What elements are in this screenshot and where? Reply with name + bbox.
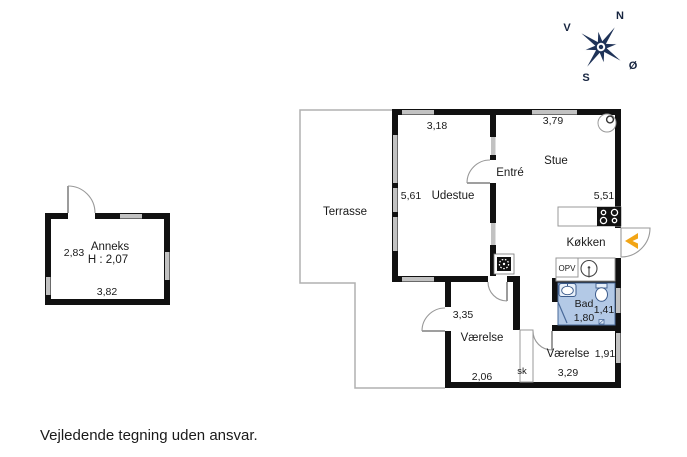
floorplan-canvas: N V S Ø Terrasse 3,18 5,61 Udestue Entré… [0,0,687,457]
window [402,110,434,115]
vaerelse-left-label: Værelse [461,332,504,344]
window [532,110,577,115]
terrace-outline [300,110,445,388]
window [393,135,398,183]
anneks-depth-dim: 2,83 [64,247,85,259]
stue-depth-dim: 5,51 [594,190,615,202]
window [393,188,398,212]
wall-segment [490,155,496,160]
window [120,214,142,219]
window [393,217,398,251]
opv-label: OPV [559,264,577,273]
door-entre-udestue [467,160,490,183]
bad-label: Bad [575,298,594,310]
compass-rose: N V S Ø [563,9,638,84]
lamp-outlet-icon [598,114,616,132]
bad-depth-dim: 1,80 [574,312,595,324]
vaerelse-left-depth-dim: 3,35 [453,309,474,321]
window [616,288,621,313]
window [165,252,170,280]
floorplan-drawing: N V S Ø Terrasse 3,18 5,61 Udestue Entré… [0,0,687,457]
window [616,333,621,363]
vaerelse-right-width-dim: 3,29 [558,367,579,379]
udestue-label: Udestue [432,190,475,202]
skab-label: sk [517,366,527,377]
wall-segment [615,258,621,388]
wall-segment [445,331,451,388]
compass-south-label: S [582,72,589,84]
wall-segment [445,282,451,307]
toilet-fixture [596,284,608,302]
terrace-boundary-line [300,110,445,388]
window [402,277,434,282]
door-vaerelse-left-terrace [422,308,445,331]
vaerelse-left-width-dim: 2,06 [472,371,493,383]
compass-east-label: Ø [629,60,638,72]
window [491,223,496,245]
stove-icon [597,207,621,226]
wall-segment [490,115,496,137]
vaerelse-right-depth-dim: 1,91 [595,348,616,360]
fireplace-icon [494,254,514,274]
stue-label: Stue [544,155,568,167]
compass-north-label: N [616,10,624,22]
wall-segment [507,276,520,282]
door-vaerelse-left-hall [488,282,507,301]
sink-fixture [559,284,576,297]
door-anneks [68,186,95,213]
wall-segment [490,183,496,223]
window [491,137,496,155]
anneks-width-dim: 3,82 [97,286,118,298]
kokken-label: Køkken [567,237,606,249]
disclaimer-text: Vejledende tegning uden ansvar. [40,427,258,444]
bad-width-dim: 1,41 [594,304,615,316]
kitchen-counter [558,207,621,226]
anneks-label: Anneks [91,241,130,253]
window [46,277,51,295]
udestue-width-dim: 3,18 [427,120,448,132]
wall-segment [513,282,520,330]
terrasse-label: Terrasse [323,206,367,218]
stue-width-dim: 3,79 [543,115,564,127]
floor-drain-icon [599,320,604,325]
udestue-depth-dim: 5,61 [401,190,422,202]
entre-label: Entré [496,167,524,179]
wall-segment [45,299,170,305]
anneks-height-label: H : 2,07 [88,254,128,266]
compass-west-label: V [563,22,571,34]
wall-segment [552,325,621,331]
vaerelse-right-label: Værelse [547,348,590,360]
wall-segment [552,278,558,302]
